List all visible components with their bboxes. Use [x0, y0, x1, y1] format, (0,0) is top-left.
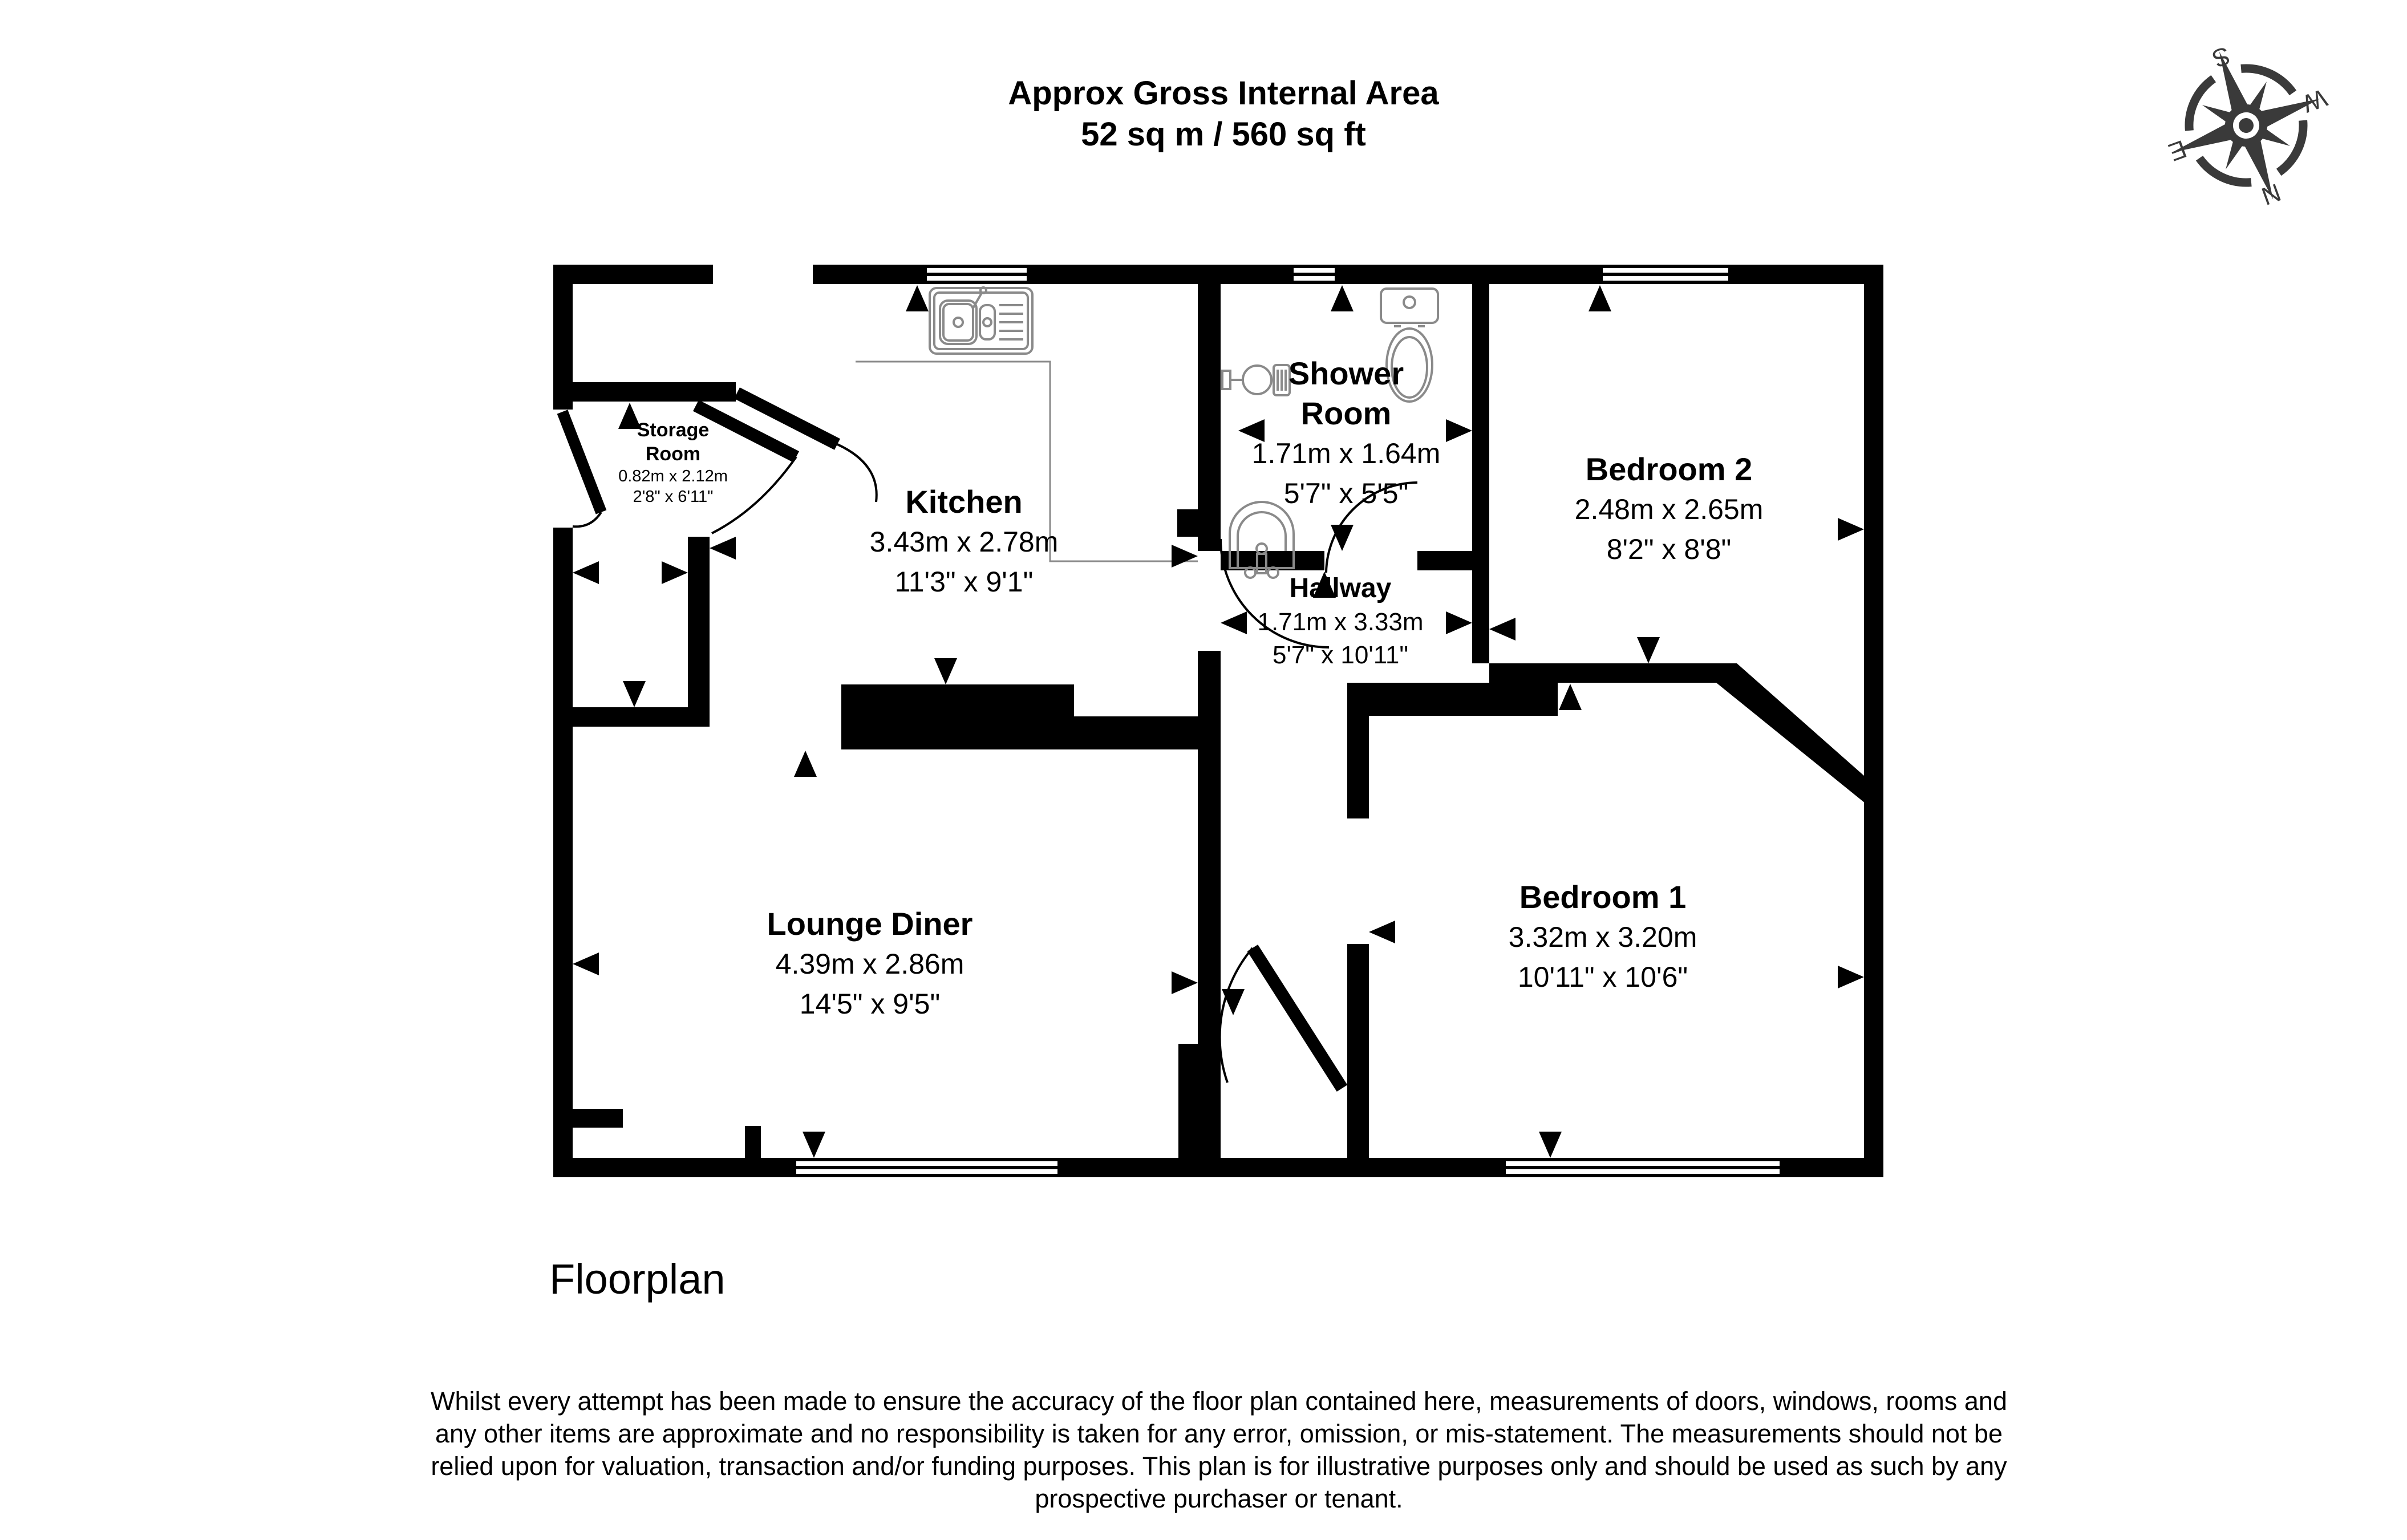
storage-imperial: 2'8" x 6'11" — [633, 487, 714, 507]
lounge-arrow-up-icon — [794, 751, 817, 777]
hallway-metric: 1.71m x 3.33m — [1257, 606, 1423, 639]
kitchen-metric: 3.43m x 2.78m — [870, 522, 1059, 562]
kitchen-arrow-left-icon — [710, 537, 736, 560]
disclaimer-line-4: prospective purchaser or tenant. — [306, 1482, 2132, 1515]
bedroom1-arrow-down-icon — [1539, 1132, 1562, 1158]
shower-arrow-right-icon — [1446, 419, 1472, 442]
lounge-metric: 4.39m x 2.86m — [776, 944, 965, 984]
lounge-arrow-down-icon — [803, 1132, 825, 1158]
shower-arrow-up-icon — [1331, 285, 1354, 311]
disclaimer-line-1: Whilst every attempt has been made to en… — [306, 1385, 2132, 1417]
disclaimer-line-3: relied upon for valuation, transaction a… — [306, 1450, 2132, 1482]
hallway-name: Hallway — [1290, 572, 1392, 606]
kitchen-arrow-up-icon — [906, 285, 929, 311]
hallway-arrow-left-icon — [1221, 611, 1247, 634]
bedroom1-arrow-left-icon — [1369, 921, 1395, 943]
bedroom2-arrow-down-icon — [1637, 637, 1660, 663]
bedroom2-arrow-left-icon — [1489, 618, 1515, 641]
kitchen-name: Kitchen — [905, 482, 1022, 522]
storage-arrow-left-icon — [573, 561, 599, 584]
bedroom2-metric: 2.48m x 2.65m — [1575, 489, 1764, 529]
bedroom1-name: Bedroom 1 — [1519, 877, 1687, 917]
hallway-arrow-right-icon — [1446, 611, 1472, 634]
kitchen-arrow-right-icon — [1172, 545, 1198, 568]
hallway-imperial: 5'7" x 10'11" — [1273, 639, 1408, 672]
bedroom1-metric: 3.32m x 3.20m — [1509, 917, 1697, 957]
shower-arrow-down-icon — [1331, 525, 1354, 551]
storage-name: Storage Room — [622, 418, 724, 466]
bedroom2-imperial: 8'2" x 8'8" — [1607, 529, 1732, 569]
bedroom1-arrow-right-icon — [1838, 966, 1864, 988]
lounge-door-leaf — [1253, 948, 1342, 1088]
storage-door-leaf — [562, 412, 601, 512]
kitchen-sink-icon — [930, 287, 1032, 354]
shower-imperial: 5'7" x 5'5" — [1284, 473, 1409, 513]
lounge-door-arc — [1220, 948, 1253, 1083]
kitchen-imperial: 11'3" x 9'1" — [895, 562, 1034, 602]
bedroom2-arrow-right-icon — [1838, 518, 1864, 541]
lounge-name: Lounge Diner — [767, 904, 973, 944]
storage-arrow-down-icon — [623, 681, 646, 707]
bedroom1-diagonal-wall — [1716, 663, 1883, 818]
plan-details-layer — [0, 0, 2407, 1540]
floorplan-page: { "title": { "line1": "Approx Gross Inte… — [0, 0, 2407, 1540]
lounge-arrow-right-icon — [1172, 971, 1198, 994]
shower-metric: 1.71m x 1.64m — [1252, 433, 1441, 473]
shower-icon — [1222, 365, 1290, 395]
kitchen-arrow-down-icon — [934, 658, 957, 684]
lounge-imperial: 14'5" x 9'5" — [800, 984, 940, 1024]
storage-door-arc — [573, 512, 601, 526]
lounge-arrow-left-icon — [573, 953, 599, 975]
bedroom2-name: Bedroom 2 — [1586, 449, 1753, 489]
entrance-door-arc-1 — [837, 444, 877, 502]
disclaimer-text: Whilst every attempt has been made to en… — [306, 1385, 2132, 1515]
disclaimer-line-2: any other items are approximate and no r… — [306, 1417, 2132, 1450]
storage-arrow-right-icon — [662, 561, 688, 584]
bedroom1-imperial: 10'11" x 10'6" — [1518, 957, 1688, 997]
bedroom2-arrow-up-icon — [1589, 285, 1611, 311]
bedroom1-arrow-up-icon — [1559, 684, 1582, 710]
shower-name: Shower Room — [1281, 354, 1412, 433]
floorplan-caption: Floorplan — [549, 1255, 726, 1303]
hallway-arrow-down-icon — [1222, 989, 1245, 1015]
storage-metric: 0.82m x 2.12m — [618, 466, 728, 487]
